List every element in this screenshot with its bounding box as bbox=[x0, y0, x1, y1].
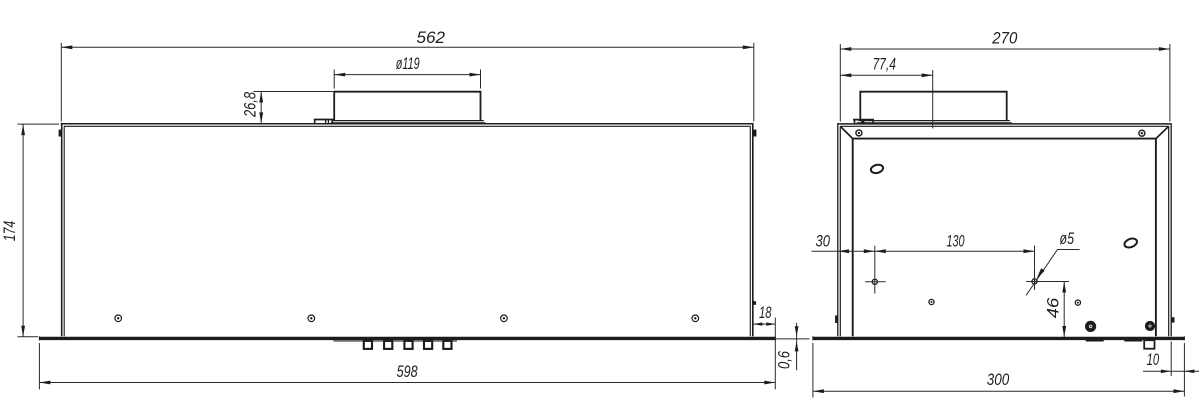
svg-text:562: 562 bbox=[417, 29, 446, 47]
svg-text:18: 18 bbox=[759, 304, 772, 322]
svg-text:ø5: ø5 bbox=[1060, 230, 1075, 248]
svg-text:174: 174 bbox=[1, 221, 19, 242]
svg-text:598: 598 bbox=[397, 363, 419, 381]
svg-text:77,4: 77,4 bbox=[872, 55, 896, 73]
svg-text:300: 300 bbox=[987, 371, 1010, 389]
svg-text:30: 30 bbox=[816, 232, 831, 250]
svg-text:270: 270 bbox=[991, 30, 1018, 48]
svg-text:130: 130 bbox=[947, 232, 966, 250]
svg-text:ø119: ø119 bbox=[396, 55, 420, 73]
svg-text:26,8: 26,8 bbox=[242, 91, 260, 117]
svg-text:46: 46 bbox=[1045, 297, 1063, 318]
svg-text:10: 10 bbox=[1147, 351, 1160, 369]
svg-text:0,6: 0,6 bbox=[775, 350, 793, 369]
